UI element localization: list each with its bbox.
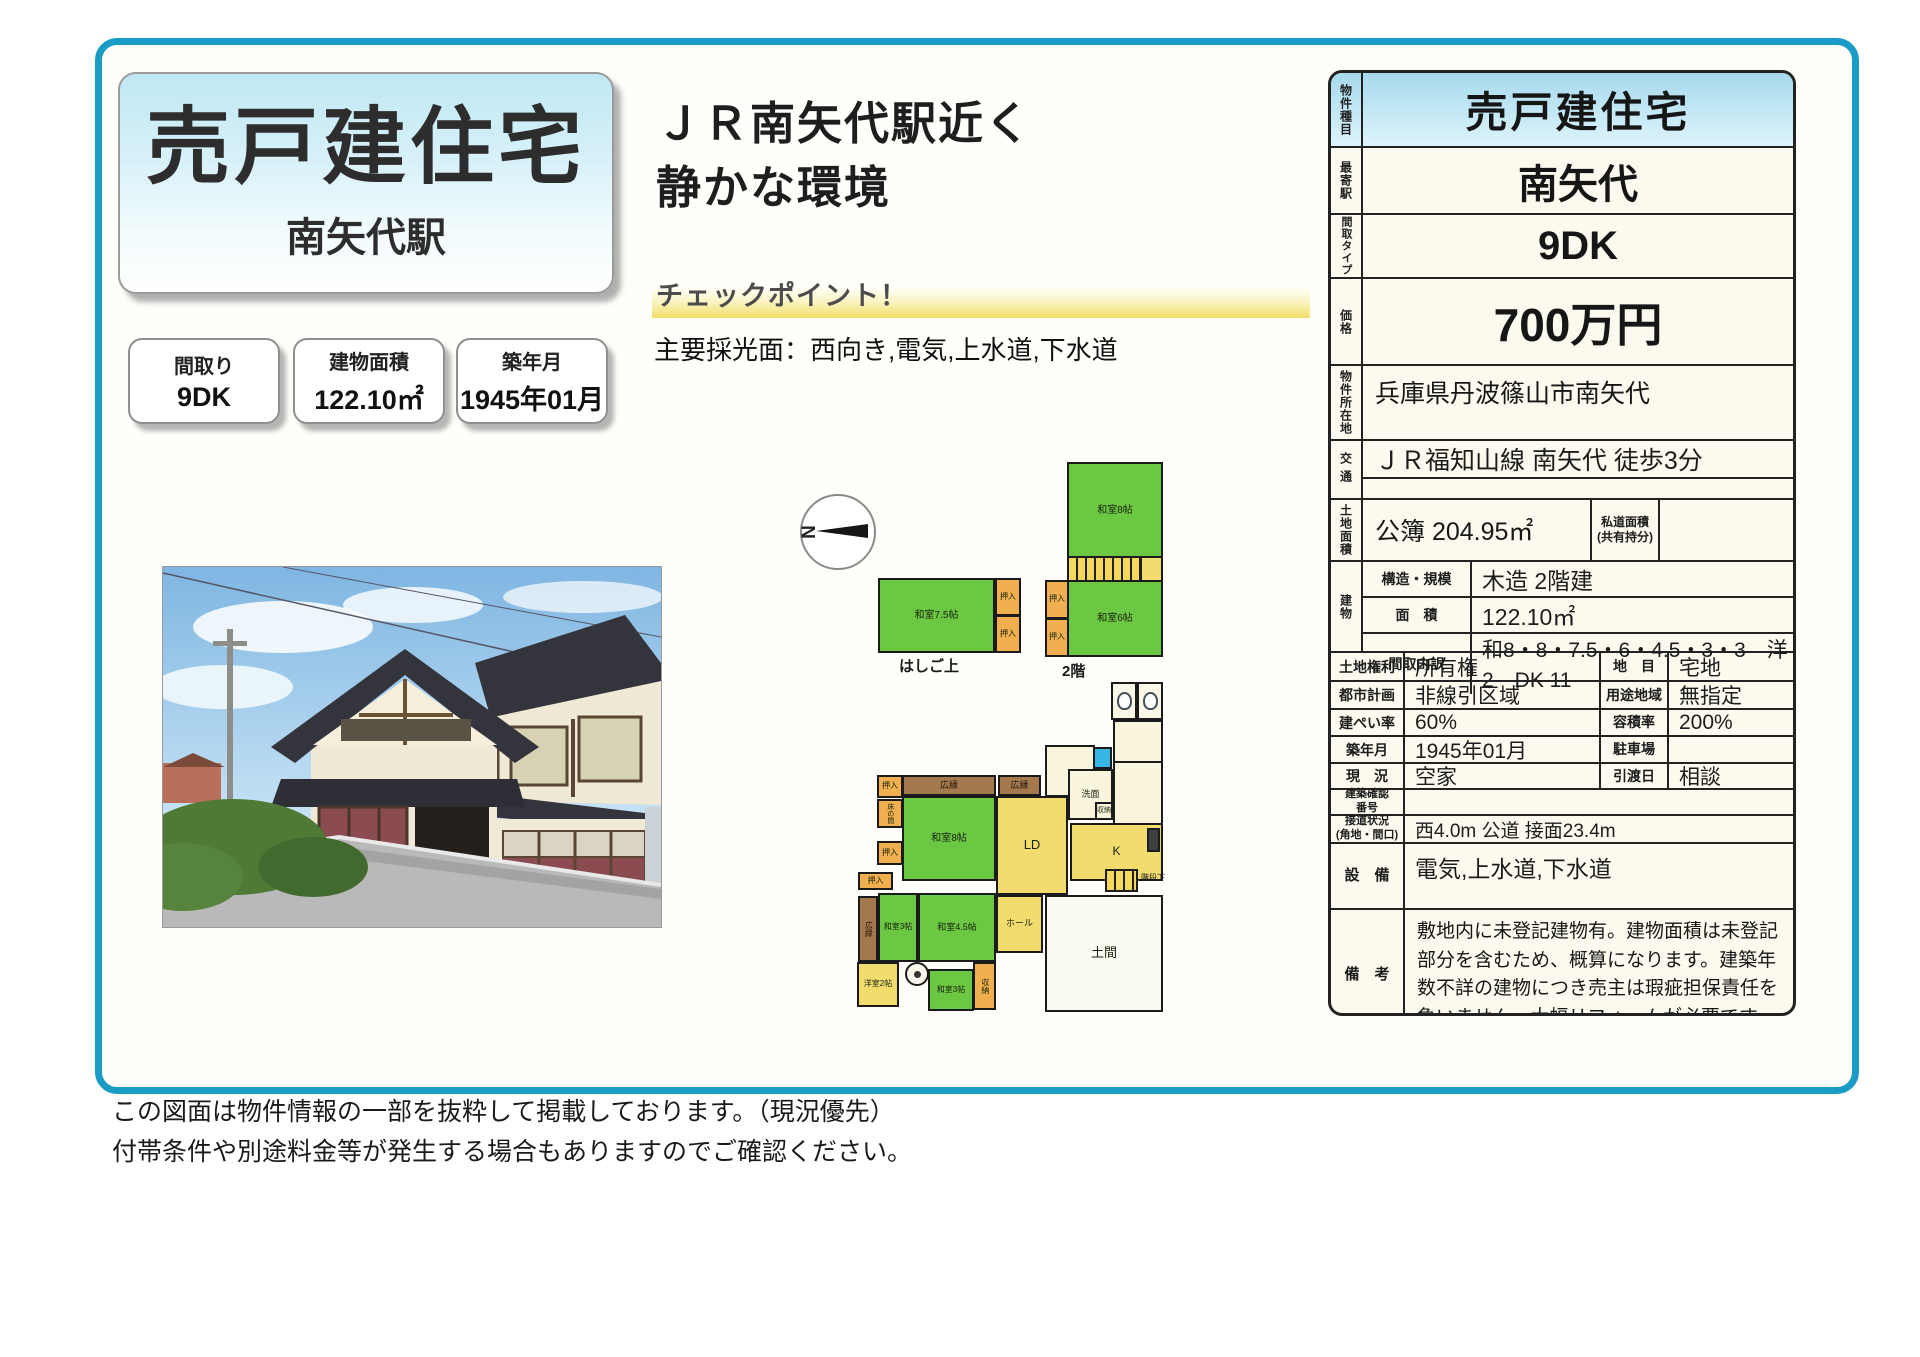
row-road-contact: 接道状況 (角地・間口) 西4.0m 公道 接面23.4m (1331, 816, 1793, 844)
floorplan-room (1067, 556, 1142, 582)
floorplan-room: 押入 (858, 872, 893, 890)
floorplan-room (1093, 747, 1112, 769)
row-property-type: 物件種目 売戸建住宅 (1331, 73, 1793, 148)
row-confirmation-number: 建築確認 番号 (1331, 790, 1793, 816)
floorplan-room: 押入 (995, 615, 1021, 653)
spec-label: 築年月 (502, 346, 562, 375)
row-address: 物件所在地 兵庫県丹波篠山市南矢代 (1331, 366, 1793, 441)
spec-label: 建物面積 (329, 346, 409, 375)
road-value: 西4.0m 公道 接面23.4m (1405, 816, 1793, 842)
row-label: 物件所在地 (1331, 366, 1363, 439)
spec-value: 122.10㎡ (314, 378, 424, 417)
private-road-label: 私道面積 (共有持分) (1590, 500, 1660, 560)
pair-value: 宅地 (1669, 653, 1793, 680)
floorplan-room: 土間 (1045, 895, 1163, 1012)
row-layout-type: 間取タイプ 9DK (1331, 215, 1793, 279)
row-building: 建物 構造・規模 木造 2階建 面 積 122.10㎡ 間取内訳 和8・8・7.… (1331, 562, 1793, 653)
pair-label: 建ぺい率 (1331, 710, 1405, 735)
catch-line-1: ＪＲ南矢代駅近く (656, 92, 1032, 156)
row-label: 土地面積 (1331, 500, 1363, 560)
pair-label: 駐車場 (1599, 737, 1669, 762)
pair-label: 用途地域 (1599, 682, 1669, 708)
spec-value: 1945年01月 (460, 378, 604, 417)
floorplan-room (1113, 761, 1163, 825)
floorplan-room: 階段下 (1139, 872, 1167, 884)
building-structure-row: 構造・規模 木造 2階建 (1363, 562, 1793, 598)
floorplan-room: 押入 (877, 841, 903, 865)
confirmation-value (1405, 790, 1793, 814)
floorplan-room (1105, 869, 1138, 892)
pair-value: 1945年01月 (1405, 737, 1599, 762)
row-label: 価格 (1331, 279, 1363, 364)
floorplan-room: 広縁 (858, 896, 878, 962)
row-label: 建築確認 番号 (1331, 790, 1405, 814)
pair-label: 容積率 (1599, 710, 1669, 735)
land-area-value: 公簿 204.95㎡ (1363, 500, 1590, 560)
pair-label: 現 況 (1331, 764, 1405, 788)
sub-label: 構造・規模 (1363, 562, 1472, 596)
row-land-area: 土地面積 公簿 204.95㎡ 私道面積 (共有持分) (1331, 500, 1793, 562)
pair-label: 引渡日 (1599, 764, 1669, 788)
private-road-value (1660, 500, 1793, 560)
row-access: 交通 ＪＲ福知山線 南矢代 徒歩3分 (1331, 441, 1793, 500)
nearest-station-value: 南矢代 (1363, 148, 1793, 213)
floorplan-room: 和室7.5帖 (878, 578, 995, 653)
floorplan-room: 広縁 (998, 775, 1041, 796)
price-value: 700万円 (1363, 279, 1793, 364)
row-label: 設 備 (1331, 844, 1405, 908)
building-area-row: 面 積 122.10㎡ (1363, 598, 1793, 634)
floorplan-caption: はしご上 (899, 655, 959, 676)
pair-label: 都市計画 (1331, 682, 1405, 708)
disclaimer: この図面は物件情報の一部を抜粋して掲載しております。（現況優先） 付帯条件や別途… (112, 1092, 912, 1172)
pair-value: 所有権 (1405, 653, 1599, 680)
row-price: 価格 700万円 (1331, 279, 1793, 366)
pair-label: 地 目 (1599, 653, 1669, 680)
floorplan-room: LD (996, 796, 1068, 895)
pair-value (1669, 737, 1793, 762)
spec-box-built-date: 築年月 1945年01月 (456, 338, 608, 424)
layout-type-value: 9DK (1363, 215, 1793, 277)
pair-label: 土地権利 (1331, 653, 1405, 680)
pair-value: 空家 (1405, 764, 1599, 788)
disclaimer-line-2: 付帯条件や別途料金等が発生する場合もありますのでご確認ください。 (112, 1132, 912, 1172)
floorplan-room: 押入 (995, 578, 1021, 616)
row-label: 接道状況 (角地・間口) (1331, 816, 1405, 842)
disclaimer-line-1: この図面は物件情報の一部を抜粋して掲載しております。（現況優先） (112, 1092, 912, 1132)
property-type-value: 売戸建住宅 (1363, 73, 1793, 146)
floorplan-room: 和室8帖 (1067, 462, 1163, 558)
floorplan-room: 押入 (1045, 580, 1069, 619)
checkpoint-detail: 主要採光面：西向き,電気,上水道,下水道 (654, 330, 1118, 367)
north-compass-icon: N (800, 494, 876, 570)
checkpoint-label: チェックポイント！ (656, 274, 908, 313)
pair-value: 200% (1669, 710, 1793, 735)
structure-value: 木造 2階建 (1472, 562, 1793, 596)
floorplan-room (1113, 720, 1163, 763)
page-title: 売戸建住宅 (146, 103, 586, 191)
floorplan-room: 収納 (1095, 802, 1113, 820)
row-facilities: 設 備 電気,上水道,下水道 (1331, 844, 1793, 910)
row-label: 物件種目 (1331, 73, 1363, 146)
pair-label: 築年月 (1331, 737, 1405, 762)
pair-value: 無指定 (1669, 682, 1793, 708)
access-line2 (1363, 479, 1793, 498)
spec-value: 9DK (177, 382, 231, 413)
floorplan-room: ホール (996, 895, 1043, 953)
catch-copy: ＪＲ南矢代駅近く 静かな環境 (656, 92, 1032, 220)
floorplan-room: 収納 (973, 962, 996, 1010)
station-subtitle: 南矢代駅 (286, 205, 446, 263)
floorplan-room: 洋室2帖 (857, 962, 899, 1007)
row-label: 間取タイプ (1331, 215, 1363, 277)
floorplan-room: 押入 (877, 775, 903, 798)
sub-label: 面 積 (1363, 598, 1472, 632)
row-remarks: 備 考 敷地内に未登記建物有。建物面積は未登記部分を含むため、概算になります。建… (1331, 910, 1793, 1016)
floorplan-room (905, 962, 929, 986)
row-land-rights: 土地権利 所有権 地 目 宅地 (1331, 653, 1793, 682)
pair-value: 相談 (1669, 764, 1793, 788)
row-label: 交通 (1331, 441, 1363, 498)
pair-value: 60% (1405, 710, 1599, 735)
floorplan-room (1147, 828, 1160, 852)
floorplan-room: 押入 (1045, 618, 1069, 657)
floorplan-caption: 2階 (1062, 660, 1085, 681)
pair-value: 非線引区域 (1405, 682, 1599, 708)
compass-arrow-icon (816, 524, 868, 538)
floorplan-room: 広縁 (902, 775, 996, 796)
floorplan-room (1140, 556, 1163, 582)
remarks-value: 敷地内に未登記建物有。建物面積は未登記部分を含むため、概算になります。建築年数不… (1405, 910, 1793, 1016)
access-value: ＪＲ福知山線 南矢代 徒歩3分 (1363, 441, 1793, 479)
row-coverage-ratio: 建ぺい率 60% 容積率 200% (1331, 710, 1793, 737)
building-area-value: 122.10㎡ (1472, 598, 1793, 632)
row-current-status: 現 況 空家 引渡日 相談 (1331, 764, 1793, 790)
row-nearest-station: 最寄駅 南矢代 (1331, 148, 1793, 215)
floorplan-room (1111, 682, 1137, 720)
row-label: 建物 (1331, 562, 1363, 651)
row-built-date: 築年月 1945年01月 駐車場 (1331, 737, 1793, 764)
catch-line-2: 静かな環境 (656, 156, 1032, 220)
title-box: 売戸建住宅 南矢代駅 (118, 72, 614, 294)
facilities-value: 電気,上水道,下水道 (1405, 844, 1793, 908)
row-city-planning: 都市計画 非線引区域 用途地域 無指定 (1331, 682, 1793, 710)
floorplan-room: 和室4.5帖 (918, 893, 996, 962)
floorplan-room: 床の間 (877, 799, 903, 828)
row-label: 備 考 (1331, 910, 1405, 1016)
property-info-table: 物件種目 売戸建住宅 最寄駅 南矢代 間取タイプ 9DK 価格 700万円 物件… (1328, 70, 1796, 1016)
spec-box-building-area: 建物面積 122.10㎡ (293, 338, 445, 424)
spec-box-layout: 間取り 9DK (128, 338, 280, 424)
spec-label: 間取り (174, 350, 234, 379)
floorplan-room: 和室6帖 (1067, 580, 1163, 657)
address-value: 兵庫県丹波篠山市南矢代 (1363, 366, 1793, 439)
house-photo (162, 566, 662, 928)
floorplan-room: 和室8帖 (902, 796, 996, 881)
floorplan-room: 和室3帖 (878, 893, 918, 962)
row-label: 最寄駅 (1331, 148, 1363, 213)
floorplan-room (1137, 682, 1163, 720)
floorplan-room: 和室3帖 (928, 969, 974, 1011)
